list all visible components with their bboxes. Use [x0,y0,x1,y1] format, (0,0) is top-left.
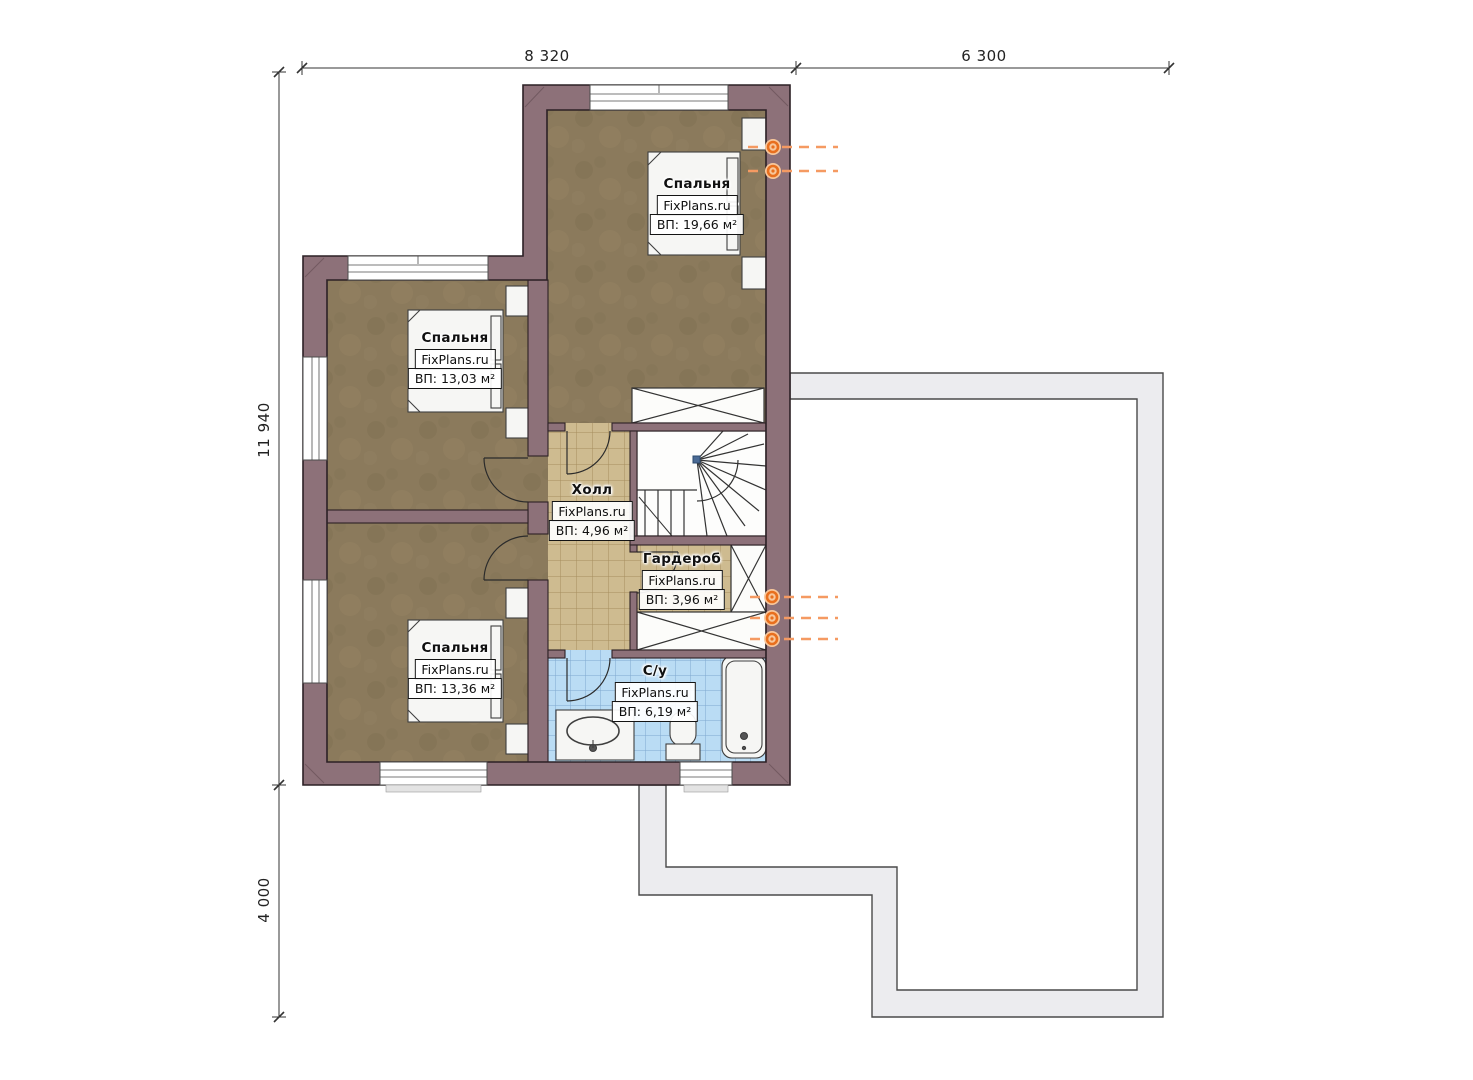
room-area: ВП: 4,96 м² [549,520,635,541]
room-brand: FixPlans.ru [414,349,495,370]
nightstand [742,118,766,150]
room-brand: FixPlans.ru [614,682,695,703]
room-area: ВП: 13,03 м² [408,368,502,389]
dimension-label-top-2: 6 300 [961,47,1006,65]
room-label-hall: Холл FixPlans.ru ВП: 4,96 м² [549,482,635,541]
room-name: Гардероб [643,551,721,567]
nightstand [506,588,528,618]
room-area: ВП: 6,19 м² [612,701,698,722]
window-bottom-bedroom [380,762,487,792]
floor-plan-page: 8 320 6 300 11 940 4 000 Спальня FixPlan… [0,0,1473,1080]
nightstand [506,286,528,316]
window-left-lower [303,580,327,683]
room-label-bedroom-top: Спальня FixPlans.ru ВП: 19,66 м² [650,176,744,235]
window-top-bedroom [590,85,728,110]
room-area: ВП: 13,36 м² [408,678,502,699]
room-name: Спальня [422,330,489,346]
room-label-bedroom-lower-left: Спальня FixPlans.ru ВП: 13,36 м² [408,640,502,699]
room-name: Спальня [664,176,731,192]
room-label-bedroom-upper-left: Спальня FixPlans.ru ВП: 13,03 м² [408,330,502,389]
room-area: ВП: 3,96 м² [639,589,725,610]
floor-stairwell [637,431,766,536]
room-name: С/у [643,663,668,679]
closet-wardrobe-tall [731,545,766,612]
window-bottom-bathroom [680,762,732,792]
window-left-upper [303,357,327,460]
closet-bedroom-top [632,388,764,423]
room-name: Холл [572,482,613,498]
room-brand: FixPlans.ru [641,570,722,591]
nightstand [742,257,766,289]
dimension-label-left-2: 4 000 [255,877,273,922]
room-brand: FixPlans.ru [656,195,737,216]
room-area: ВП: 19,66 м² [650,214,744,235]
window-top-left-bedroom [348,256,488,280]
closet-wardrobe-wide [637,612,766,650]
nightstand [506,408,528,438]
dimension-label-top-1: 8 320 [524,47,569,65]
bathtub [722,656,766,758]
nightstand [506,724,528,754]
room-label-bathroom: С/у FixPlans.ru ВП: 6,19 м² [612,663,698,722]
room-brand: FixPlans.ru [551,501,632,522]
room-name: Спальня [422,640,489,656]
floor-plan-drawing [0,0,1473,1080]
dimension-label-left-1: 11 940 [255,402,273,458]
room-label-wardrobe: Гардероб FixPlans.ru ВП: 3,96 м² [639,551,725,610]
stair-pivot-marker [693,456,700,463]
room-brand: FixPlans.ru [414,659,495,680]
